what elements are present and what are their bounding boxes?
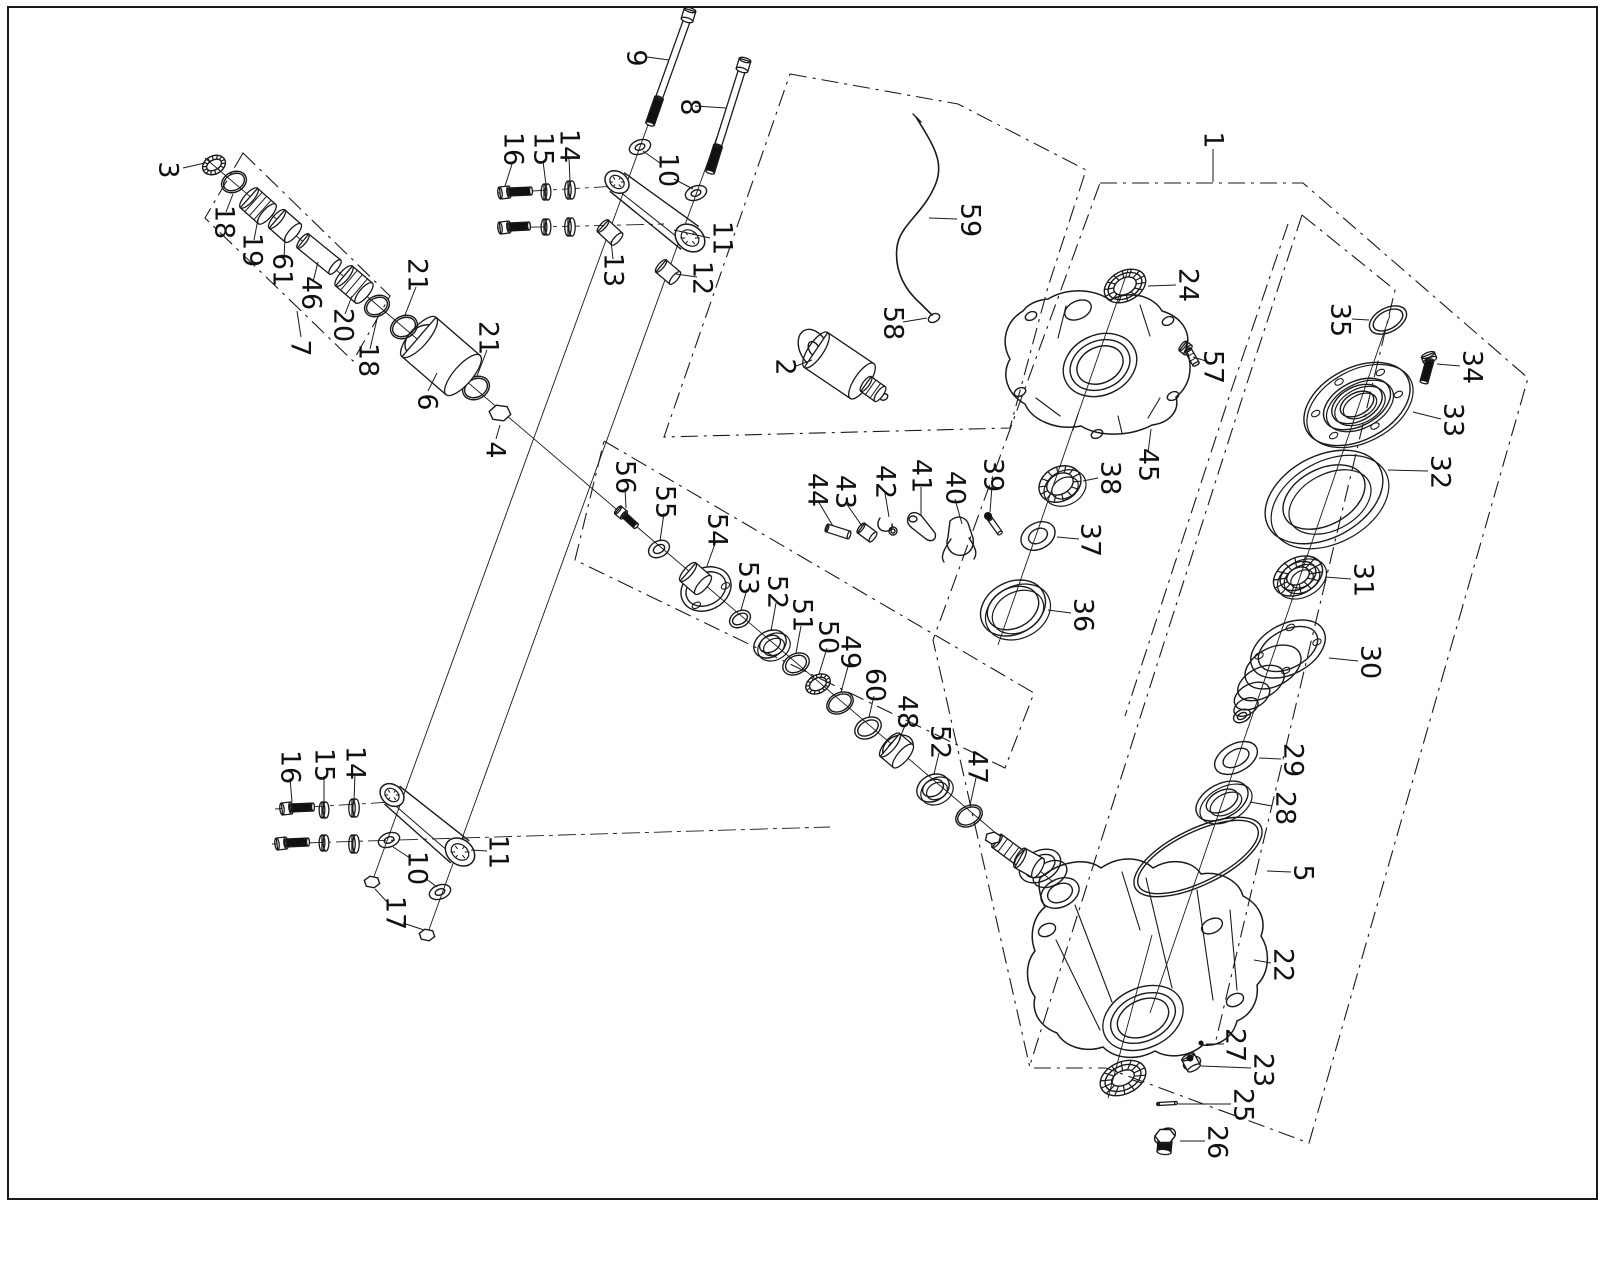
part-label-47: 47 — [962, 750, 993, 784]
hatch-line — [806, 686, 810, 687]
part-label-17: 17 — [380, 896, 411, 930]
part-label-31: 31 — [1348, 563, 1379, 597]
hatch-line — [217, 155, 218, 159]
part-label-28: 28 — [1270, 791, 1301, 825]
part-label-35: 35 — [1325, 303, 1356, 337]
page-background — [0, 0, 1600, 1280]
part-label-39: 39 — [978, 458, 1009, 492]
hatch-line — [1039, 486, 1047, 487]
part-drawing — [1158, 1102, 1176, 1106]
part-drawing — [291, 803, 313, 812]
part-label-46: 46 — [296, 276, 327, 310]
part-label-40: 40 — [940, 471, 971, 505]
part-label-27: 27 — [1220, 1028, 1251, 1062]
part-drawing — [364, 876, 379, 888]
hatch-line — [816, 675, 817, 678]
part-label-15: 15 — [309, 748, 340, 782]
part-label-1: 1 — [1198, 131, 1229, 148]
part-label-11: 11 — [707, 221, 738, 255]
hatch-line — [1073, 481, 1081, 482]
part-label-53: 53 — [733, 561, 764, 595]
part-label-18: 18 — [353, 343, 384, 377]
part-label-55: 55 — [650, 485, 681, 519]
part-drawing — [527, 222, 530, 230]
part-label-14: 14 — [340, 746, 371, 780]
part-drawing — [507, 187, 532, 196]
part-label-34: 34 — [1457, 350, 1488, 384]
hatch-line — [826, 682, 830, 683]
part-label-56: 56 — [610, 460, 641, 494]
part-label-3: 3 — [153, 161, 184, 178]
part-drawing — [419, 929, 434, 941]
part-label-9: 9 — [621, 49, 652, 66]
part-drawing — [509, 222, 529, 231]
part-label-48: 48 — [892, 695, 923, 729]
part-drawing — [529, 187, 532, 195]
part-label-23: 23 — [1248, 1053, 1279, 1087]
part-label-16: 16 — [498, 132, 529, 166]
part-label-33: 33 — [1438, 403, 1469, 437]
part-label-44: 44 — [802, 473, 833, 507]
part-label-61: 61 — [267, 253, 298, 287]
part-label-14: 14 — [554, 129, 585, 163]
part-label-8: 8 — [675, 98, 706, 115]
part-label-6: 6 — [412, 393, 443, 410]
part-drawing — [1175, 1101, 1178, 1104]
part-drawing — [311, 803, 314, 811]
part-label-10: 10 — [402, 851, 433, 885]
diagram-page: 3181961462018721621498161514101113125958… — [0, 0, 1600, 1280]
part-label-42: 42 — [870, 465, 901, 499]
part-label-37: 37 — [1075, 523, 1106, 557]
part-label-38: 38 — [1095, 461, 1126, 495]
part-label-45: 45 — [1133, 448, 1164, 482]
part-label-43: 43 — [830, 475, 861, 509]
part-label-54: 54 — [702, 513, 733, 547]
part-label-10: 10 — [653, 153, 684, 187]
part-label-60: 60 — [860, 668, 891, 702]
part-drawing — [1155, 1130, 1175, 1143]
part-label-12: 12 — [687, 261, 718, 295]
part-label-21: 21 — [402, 258, 433, 292]
part-label-32: 32 — [1425, 455, 1456, 489]
part-label-24: 24 — [1173, 268, 1204, 302]
part-drawing — [284, 838, 309, 847]
part-label-29: 29 — [1278, 743, 1309, 777]
part-label-25: 25 — [1228, 1088, 1259, 1122]
part-label-49: 49 — [835, 635, 866, 669]
part-drawing — [1157, 1149, 1171, 1155]
part-label-58: 58 — [878, 306, 909, 340]
part-label-36: 36 — [1068, 598, 1099, 632]
part-label-22: 22 — [1268, 948, 1299, 982]
part-label-19: 19 — [237, 233, 268, 267]
part-label-41: 41 — [906, 459, 937, 493]
part-label-59: 59 — [955, 203, 986, 237]
part-drawing — [1157, 1101, 1178, 1105]
part-label-11: 11 — [483, 835, 514, 869]
part-label-16: 16 — [275, 750, 306, 784]
part-label-26: 26 — [1202, 1125, 1233, 1159]
part-drawing — [289, 803, 314, 812]
part-label-21: 21 — [473, 321, 504, 355]
part-drawing — [509, 187, 531, 196]
part-drawing — [306, 838, 309, 846]
part-label-57: 57 — [1198, 350, 1229, 384]
hatch-line — [211, 171, 212, 175]
part-label-52: 52 — [925, 725, 956, 759]
part-label-4: 4 — [480, 441, 511, 458]
diagram-canvas: 3181961462018721621498161514101113125958… — [0, 0, 1600, 1280]
part-label-13: 13 — [598, 253, 629, 287]
part-label-18: 18 — [209, 205, 240, 239]
part-label-20: 20 — [328, 308, 359, 342]
part-label-7: 7 — [285, 339, 316, 356]
hatch-line — [819, 690, 820, 693]
part-drawing — [507, 222, 530, 231]
part-drawing — [986, 832, 1001, 844]
part-label-2: 2 — [770, 358, 801, 375]
part-label-30: 30 — [1355, 645, 1386, 679]
part-label-5: 5 — [1288, 864, 1319, 881]
part-drawing — [984, 512, 992, 520]
part-drawing — [1187, 1055, 1194, 1062]
part-drawing — [286, 838, 308, 847]
